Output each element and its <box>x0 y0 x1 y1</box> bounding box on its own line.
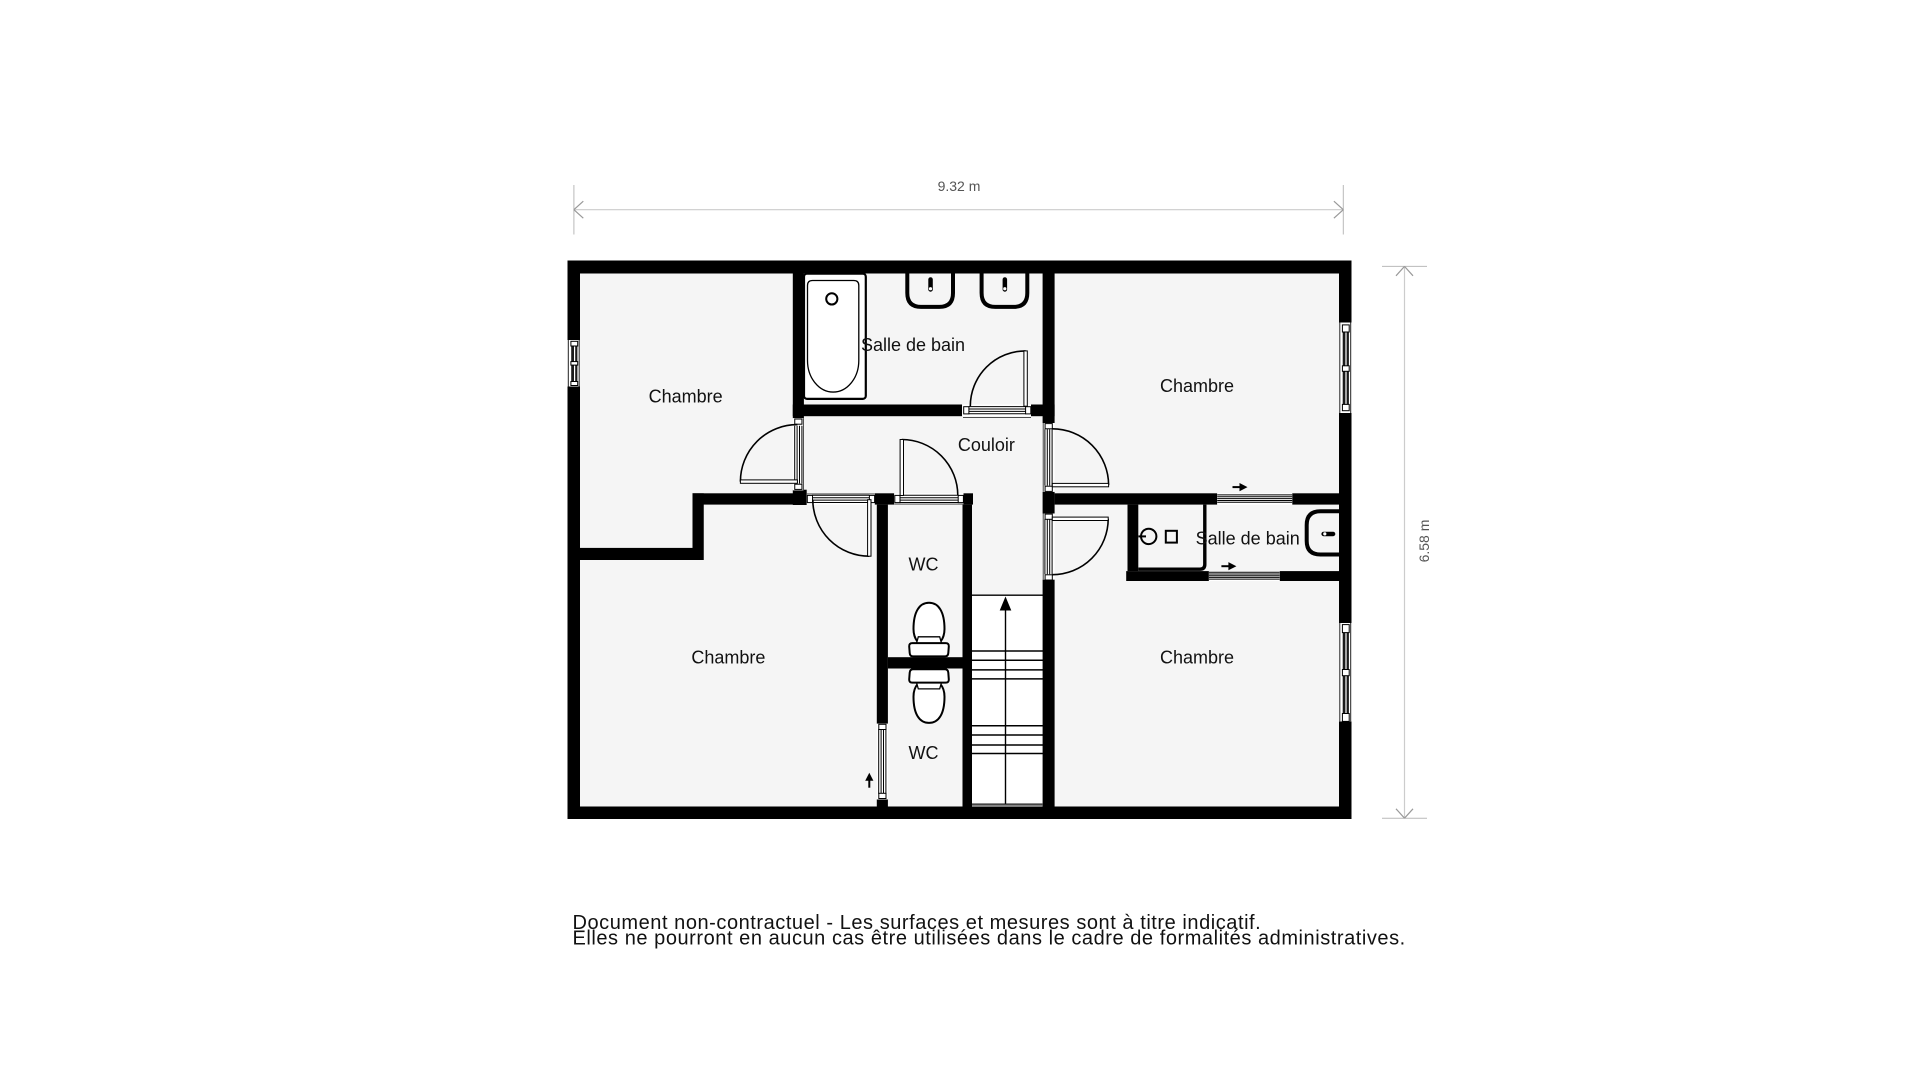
svg-text:Chambre: Chambre <box>1160 376 1234 396</box>
svg-text:Salle de bain: Salle de bain <box>1196 529 1300 549</box>
svg-text:WC: WC <box>909 555 939 575</box>
svg-text:Chambre: Chambre <box>691 648 765 668</box>
svg-text:Elles ne pourront en aucun cas: Elles ne pourront en aucun cas être util… <box>573 928 1406 950</box>
svg-text:Chambre: Chambre <box>1160 648 1234 668</box>
svg-text:Salle de bain: Salle de bain <box>861 335 965 355</box>
svg-text:WC: WC <box>909 743 939 763</box>
svg-text:Chambre: Chambre <box>649 387 723 407</box>
svg-text:9.32 m: 9.32 m <box>938 178 981 194</box>
svg-text:Couloir: Couloir <box>958 435 1015 455</box>
svg-text:6.58 m: 6.58 m <box>1416 520 1432 563</box>
